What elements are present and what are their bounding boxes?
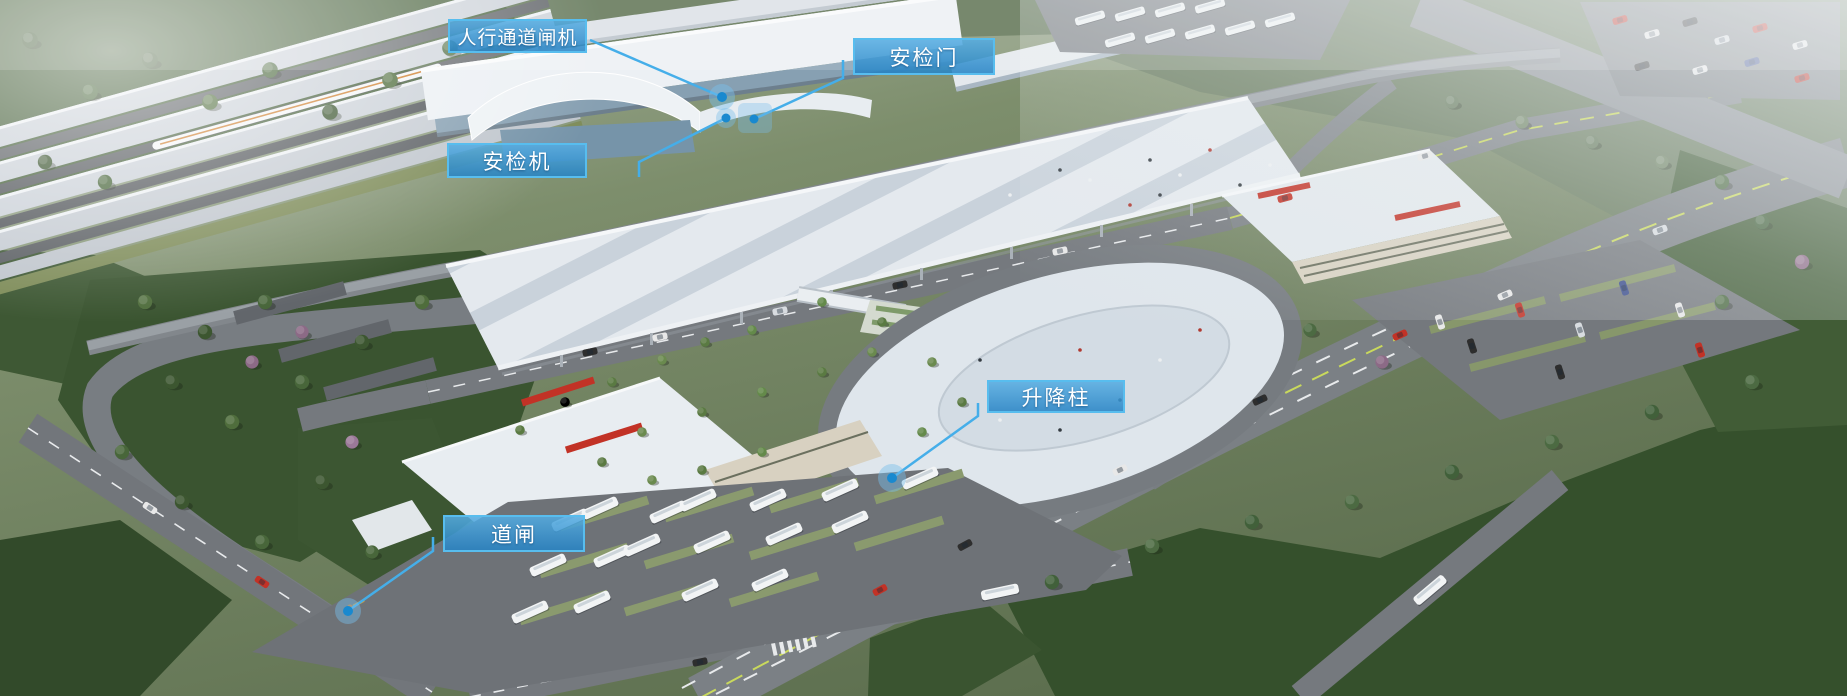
hotspot-security-scanner[interactable]	[716, 108, 736, 128]
callout-security-scanner[interactable]: 安检机	[447, 143, 587, 178]
callout-overlay	[0, 0, 1847, 696]
hotspot-pedestrian-gate-machine[interactable]	[709, 84, 735, 110]
hotspot-security-gate[interactable]	[738, 103, 772, 133]
callout-pedestrian-gate-machine[interactable]: 人行通道闸机	[448, 19, 587, 53]
callout-road-barrier[interactable]: 道闸	[443, 515, 585, 552]
hotspot-lifting-bollard[interactable]	[878, 464, 906, 492]
aerial-station-render: 人行通道闸机 安检门 安检机 升降柱 道闸	[0, 0, 1847, 696]
hotspot-road-barrier[interactable]	[335, 598, 361, 624]
callout-lifting-bollard[interactable]: 升降柱	[987, 380, 1125, 413]
callout-security-gate[interactable]: 安检门	[853, 38, 995, 75]
